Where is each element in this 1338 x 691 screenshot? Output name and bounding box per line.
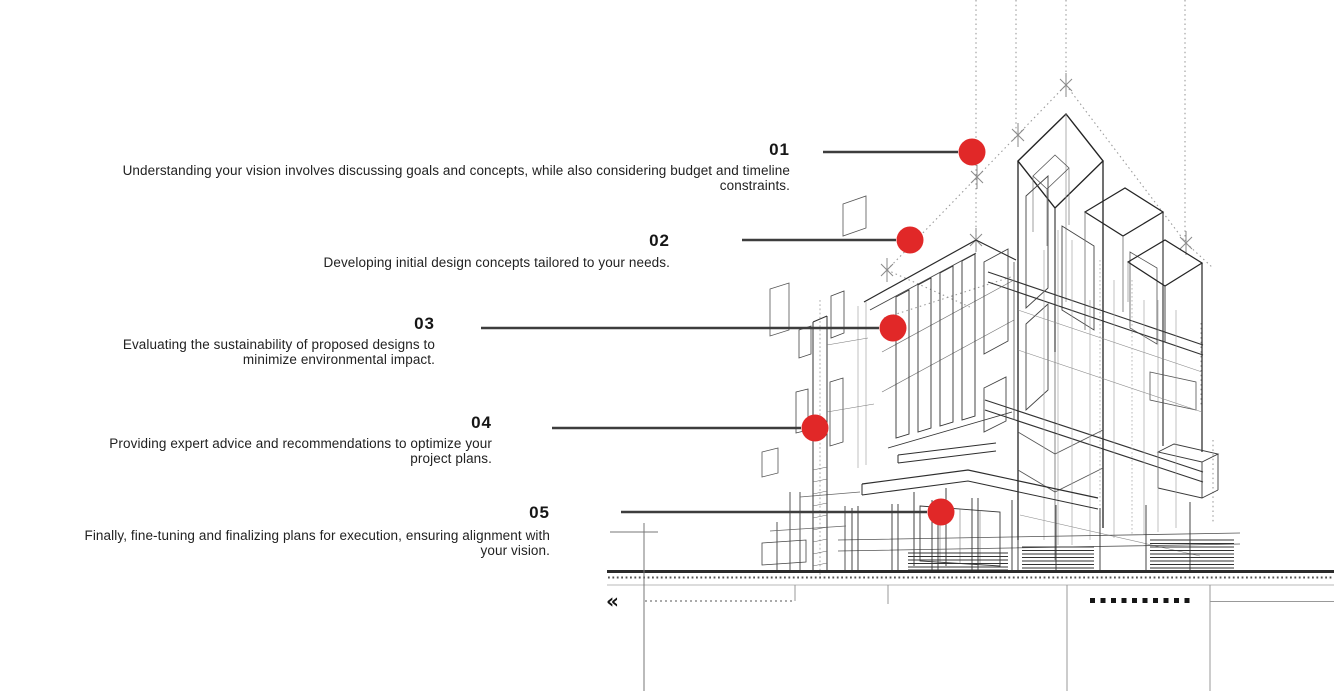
step-4-number: 04 xyxy=(72,413,492,433)
step-2-description: Developing initial design concepts tailo… xyxy=(240,256,670,271)
double-chevron-left-icon: « xyxy=(606,589,617,613)
construction-guides xyxy=(884,0,1213,523)
building-mast xyxy=(762,196,874,575)
step-4-marker xyxy=(802,415,829,442)
process-step-3: 03 Evaluating the sustainability of prop… xyxy=(90,314,435,367)
step-5-description: Finally, fine-tuning and finalizing plan… xyxy=(72,529,550,558)
design-process-section: 01 Understanding your vision involves di… xyxy=(0,0,1338,691)
dotted-squares-row xyxy=(1090,598,1190,603)
step-3-number: 03 xyxy=(90,314,435,334)
step-2-marker xyxy=(897,227,924,254)
step-1-number: 01 xyxy=(75,140,790,160)
process-step-4: 04 Providing expert advice and recommend… xyxy=(72,413,492,466)
process-step-1: 01 Understanding your vision involves di… xyxy=(75,140,790,193)
building-ground-floor xyxy=(762,492,1240,571)
step-3-description: Evaluating the sustainability of propose… xyxy=(90,338,435,367)
step-5-marker xyxy=(928,499,955,526)
building-towers xyxy=(985,114,1218,560)
step-5-number: 05 xyxy=(72,503,550,523)
survey-x-marks xyxy=(881,73,1192,282)
building-left-block xyxy=(858,240,1016,468)
step-4-description: Providing expert advice and recommendati… xyxy=(72,437,492,466)
step-1-marker xyxy=(959,139,986,166)
process-step-2: 02 Developing initial design concepts ta… xyxy=(240,231,670,271)
process-step-5: 05 Finally, fine-tuning and finalizing p… xyxy=(72,503,550,558)
step-markers xyxy=(802,139,986,526)
ground-lines xyxy=(607,572,1334,586)
step-3-marker xyxy=(880,315,907,342)
step-1-description: Understanding your vision involves discu… xyxy=(75,164,790,193)
step-2-number: 02 xyxy=(240,231,670,251)
